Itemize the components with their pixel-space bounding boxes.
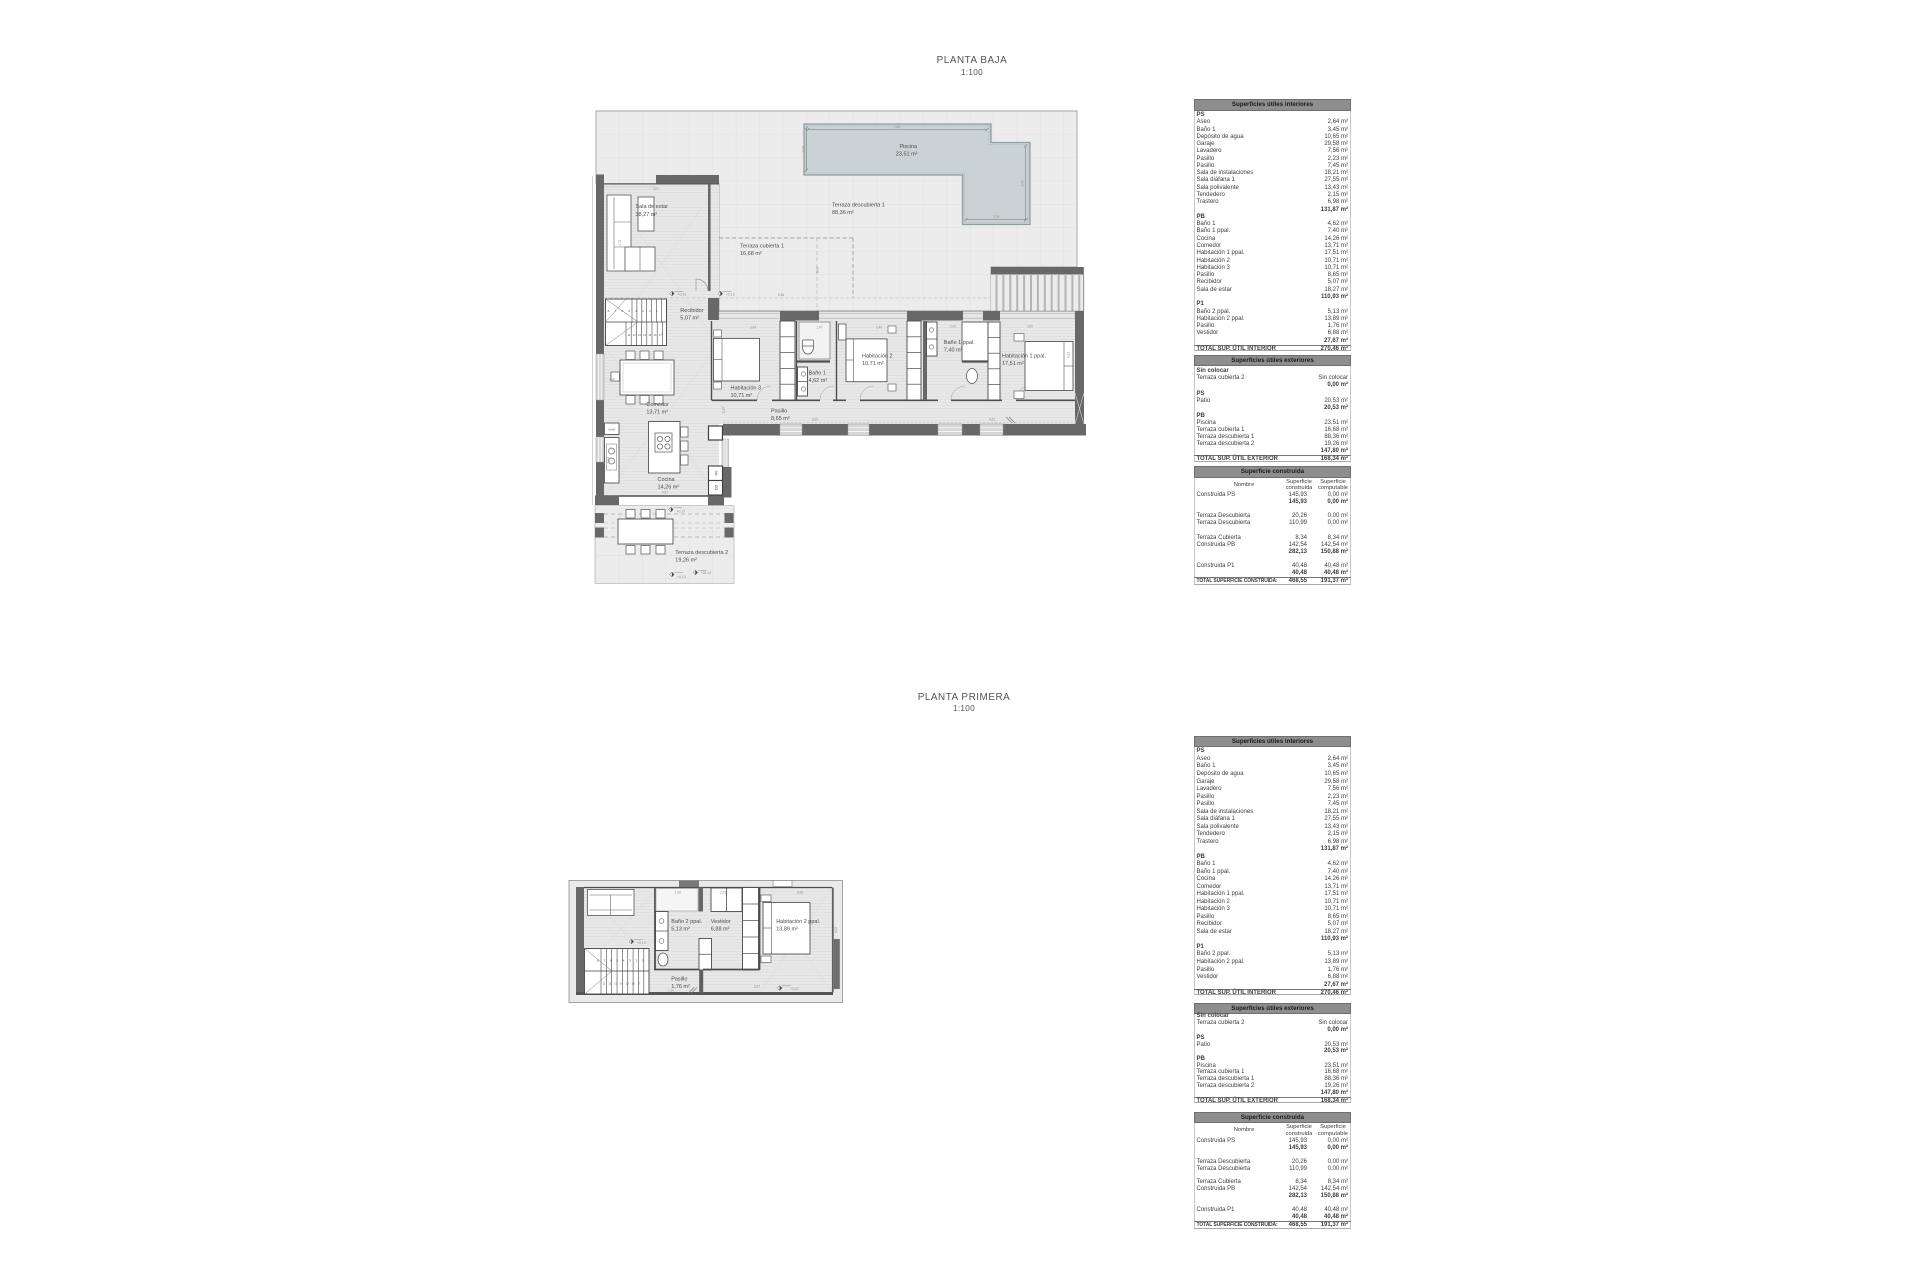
- svg-text:+0,13: +0,13: [637, 941, 646, 945]
- svg-text:1,90: 1,90: [675, 891, 681, 895]
- svg-text:3,96: 3,96: [797, 891, 803, 895]
- svg-text:5,07 m²: 5,07 m²: [680, 316, 699, 322]
- svg-text:Vestidor: Vestidor: [711, 919, 731, 925]
- svg-text:1,90: 1,90: [722, 407, 726, 413]
- svg-text:+0,13: +0,13: [726, 293, 735, 297]
- svg-text:3,40: 3,40: [876, 326, 882, 330]
- svg-text:4,62 m²: 4,62 m²: [809, 378, 828, 384]
- svg-text:CO: CO: [715, 485, 719, 490]
- svg-text:Habitación 3: Habitación 3: [731, 386, 762, 392]
- svg-text:1,96: 1,96: [668, 989, 674, 993]
- svg-text:3,45: 3,45: [750, 326, 756, 330]
- svg-text:17,51 m²: 17,51 m²: [1002, 361, 1024, 367]
- svg-text:Terraza descubierta 2: Terraza descubierta 2: [675, 550, 728, 556]
- svg-text:Habitación 2 ppal.: Habitación 2 ppal.: [776, 919, 821, 925]
- svg-text:Recibidor: Recibidor: [680, 308, 703, 314]
- svg-text:4,53: 4,53: [989, 418, 995, 422]
- svg-text:3,40: 3,40: [1021, 180, 1025, 187]
- svg-text:Habitación 1 ppal.: Habitación 1 ppal.: [1002, 354, 1047, 360]
- svg-text:1,76 m²: 1,76 m²: [671, 984, 690, 990]
- svg-text:Baño 1 ppal.: Baño 1 ppal.: [944, 340, 975, 346]
- svg-text:3,60: 3,60: [1027, 325, 1033, 329]
- svg-text:H+M: H+M: [608, 428, 615, 432]
- svg-text:7,40 m²: 7,40 m²: [944, 348, 963, 354]
- svg-text:8,69: 8,69: [812, 418, 818, 422]
- svg-text:+0,13: +0,13: [677, 575, 686, 579]
- svg-text:7,69: 7,69: [894, 125, 901, 129]
- svg-text:Terraza cubierta 1: Terraza cubierta 1: [740, 244, 784, 250]
- svg-text:3,57: 3,57: [754, 985, 760, 989]
- svg-text:Cocina: Cocina: [658, 477, 676, 483]
- svg-text:2,40: 2,40: [950, 325, 956, 329]
- svg-text:13,89 m²: 13,89 m²: [776, 927, 798, 933]
- svg-text:2,79: 2,79: [993, 215, 1000, 219]
- svg-text:+0,13: +0,13: [677, 510, 686, 514]
- svg-text:23,51 m²: 23,51 m²: [896, 152, 918, 158]
- svg-text:Piscina: Piscina: [900, 144, 919, 150]
- svg-text:4,21: 4,21: [1067, 352, 1071, 358]
- svg-text:5,36: 5,36: [778, 293, 785, 297]
- svg-text:Comedor: Comedor: [646, 402, 669, 408]
- svg-text:5,13 m²: 5,13 m²: [671, 927, 690, 933]
- svg-text:2+2: 2+2: [609, 377, 614, 381]
- svg-text:4,07: 4,07: [653, 187, 659, 191]
- svg-text:6,88 m²: 6,88 m²: [711, 927, 730, 933]
- svg-text:Baño 2 ppal.: Baño 2 ppal.: [671, 919, 702, 925]
- svg-text:8,65 m²: 8,65 m²: [771, 416, 790, 422]
- svg-text:4,87: 4,87: [662, 491, 668, 495]
- svg-text:13,71 m²: 13,71 m²: [646, 410, 668, 416]
- svg-text:+3,20: +3,20: [790, 987, 799, 991]
- svg-text:NV: NV: [715, 470, 719, 475]
- svg-text:38,27 m²: 38,27 m²: [636, 212, 658, 218]
- svg-text:2,07: 2,07: [802, 146, 806, 153]
- svg-text:19,26 m²: 19,26 m²: [675, 558, 697, 564]
- svg-text:1,94: 1,94: [607, 457, 611, 463]
- svg-text:Habitación 2: Habitación 2: [862, 354, 893, 360]
- svg-text:88,36 m²: 88,36 m²: [832, 210, 854, 216]
- svg-text:+36,13: +36,13: [701, 571, 712, 575]
- svg-text:Pasillo: Pasillo: [671, 977, 687, 983]
- svg-text:6,02: 6,02: [834, 927, 838, 933]
- svg-text:16,68 m²: 16,68 m²: [740, 251, 762, 257]
- svg-text:1,47: 1,47: [816, 326, 822, 330]
- svg-text:14,26 m²: 14,26 m²: [658, 485, 680, 491]
- svg-text:Terraza descubierta 1: Terraza descubierta 1: [832, 203, 885, 209]
- svg-text:4,72: 4,72: [618, 240, 622, 246]
- svg-text:3,00: 3,00: [816, 267, 820, 274]
- svg-text:+0,13: +0,13: [678, 293, 687, 297]
- svg-text:10,71 m²: 10,71 m²: [731, 393, 753, 399]
- svg-text:Baño 1: Baño 1: [809, 371, 826, 377]
- svg-text:2,15: 2,15: [720, 891, 726, 895]
- svg-text:Pasillo: Pasillo: [771, 409, 787, 415]
- svg-text:Sala de estar: Sala de estar: [636, 204, 669, 210]
- svg-text:10,71 m²: 10,71 m²: [862, 361, 884, 367]
